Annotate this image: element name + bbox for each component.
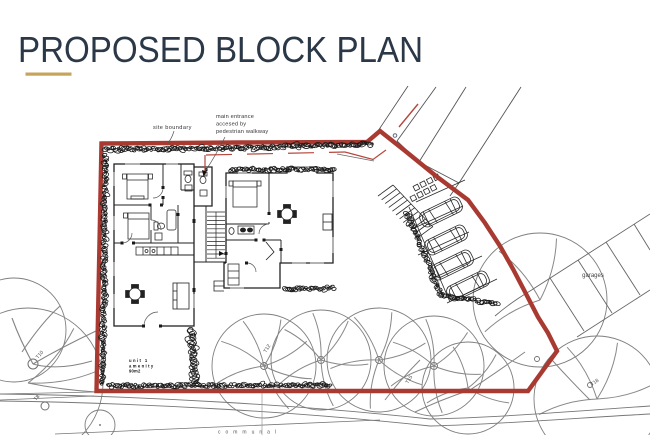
svg-text:main entrance: main entrance <box>216 114 254 120</box>
svg-text:unit 1: unit 1 <box>129 358 149 363</box>
svg-text:site boundary: site boundary <box>153 125 192 131</box>
svg-text:PROPOSED BLOCK PLAN: PROPOSED BLOCK PLAN <box>18 29 423 70</box>
svg-text:90m2: 90m2 <box>129 369 141 374</box>
svg-text:garages: garages <box>582 273 604 279</box>
svg-text:c o m m u n a l: c o m m u n a l <box>218 430 278 435</box>
svg-text:pedestrian walkway: pedestrian walkway <box>216 129 268 135</box>
svg-text:accesed by: accesed by <box>216 122 246 128</box>
